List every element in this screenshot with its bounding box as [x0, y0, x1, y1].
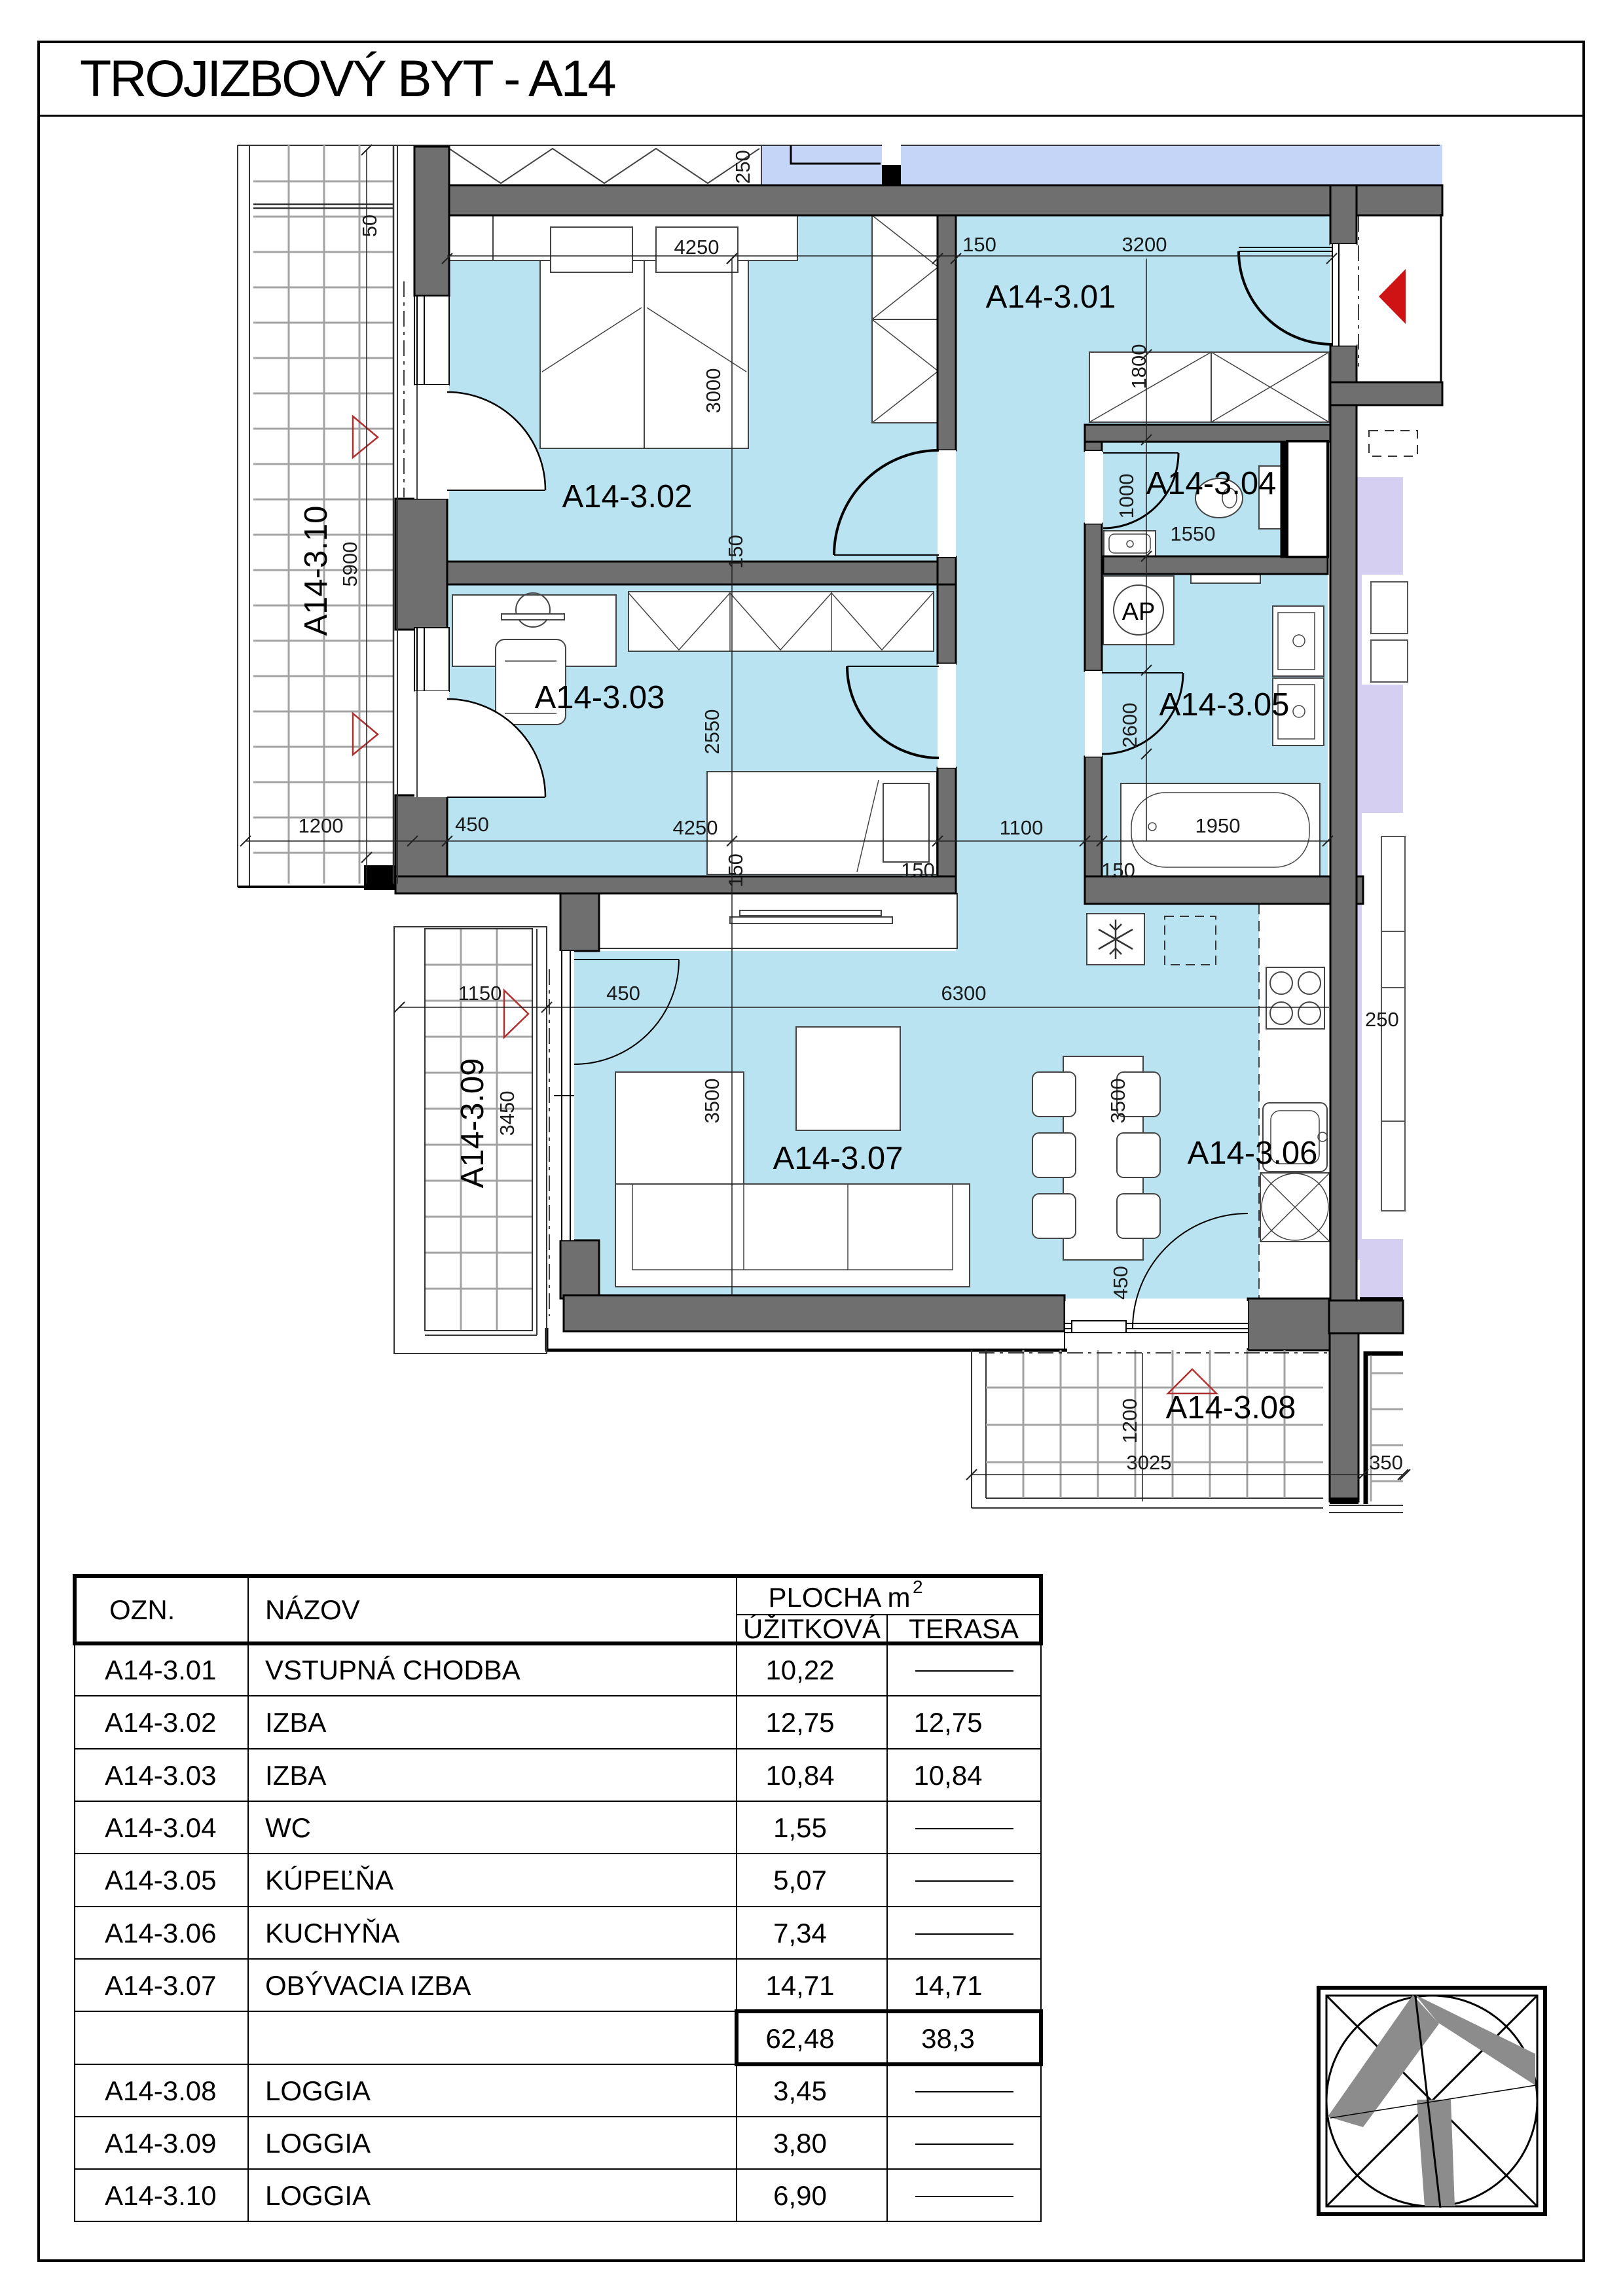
svg-text:PLOCHA m: PLOCHA m — [768, 1582, 910, 1613]
svg-text:3200: 3200 — [1122, 233, 1167, 256]
svg-text:38,3: 38,3 — [921, 2023, 975, 2054]
svg-text:WC: WC — [265, 1812, 311, 1843]
svg-text:1000: 1000 — [1115, 474, 1138, 519]
svg-text:A14-3.01: A14-3.01 — [105, 1655, 216, 1685]
svg-text:1200: 1200 — [1118, 1399, 1141, 1444]
svg-text:3025: 3025 — [1127, 1451, 1172, 1474]
svg-text:150: 150 — [962, 233, 996, 256]
svg-text:3,45: 3,45 — [773, 2075, 827, 2106]
svg-text:12,75: 12,75 — [765, 1707, 834, 1738]
svg-text:OZN.: OZN. — [109, 1594, 175, 1625]
svg-text:A14-3.03: A14-3.03 — [535, 680, 665, 715]
svg-text:A14-3.02: A14-3.02 — [562, 479, 693, 514]
svg-text:3450: 3450 — [496, 1091, 519, 1136]
svg-text:A14-3.08: A14-3.08 — [1166, 1390, 1296, 1426]
svg-text:1,55: 1,55 — [773, 1812, 827, 1843]
svg-text:150: 150 — [724, 535, 747, 569]
svg-text:TROJIZBOVÝ BYT - A14: TROJIZBOVÝ BYT - A14 — [80, 49, 615, 107]
svg-text:450: 450 — [1109, 1266, 1132, 1300]
svg-text:A14-3.01: A14-3.01 — [986, 279, 1116, 315]
svg-text:50: 50 — [358, 215, 381, 237]
svg-text:350: 350 — [1369, 1451, 1403, 1474]
svg-text:2: 2 — [913, 1577, 923, 1597]
svg-text:KUCHYŇA: KUCHYŇA — [265, 1918, 399, 1948]
svg-text:A14-3.08: A14-3.08 — [105, 2075, 216, 2106]
svg-text:KÚPEĽŇA: KÚPEĽŇA — [265, 1865, 393, 1895]
svg-text:4250: 4250 — [674, 236, 720, 259]
svg-text:14,71: 14,71 — [765, 1970, 834, 2001]
svg-text:A14-3.06: A14-3.06 — [1188, 1136, 1318, 1171]
svg-text:A14-3.07: A14-3.07 — [105, 1970, 216, 2001]
svg-text:A14-3.02: A14-3.02 — [105, 1707, 216, 1738]
svg-text:2600: 2600 — [1118, 703, 1141, 748]
svg-text:250: 250 — [731, 150, 754, 184]
svg-text:450: 450 — [455, 813, 489, 836]
svg-text:450: 450 — [606, 982, 640, 1005]
svg-text:NÁZOV: NÁZOV — [265, 1594, 360, 1625]
svg-text:3500: 3500 — [1106, 1079, 1129, 1124]
svg-text:3500: 3500 — [701, 1079, 723, 1124]
svg-text:12,75: 12,75 — [913, 1707, 982, 1738]
svg-text:1150: 1150 — [458, 982, 502, 1005]
svg-text:150: 150 — [1101, 859, 1135, 882]
svg-text:A14-3.07: A14-3.07 — [773, 1141, 903, 1176]
svg-text:TERASA: TERASA — [909, 1613, 1019, 1644]
svg-text:A14-3.04: A14-3.04 — [1146, 466, 1277, 501]
svg-text:IZBA: IZBA — [265, 1760, 326, 1791]
svg-text:1800: 1800 — [1127, 344, 1150, 389]
svg-text:A14-3.05: A14-3.05 — [1159, 687, 1290, 723]
svg-text:LOGGIA: LOGGIA — [265, 2180, 371, 2211]
svg-text:LOGGIA: LOGGIA — [265, 2128, 371, 2159]
svg-text:ÚŽITKOVÁ: ÚŽITKOVÁ — [743, 1613, 881, 1644]
svg-text:A14-3.10: A14-3.10 — [299, 506, 334, 636]
svg-text:10,22: 10,22 — [765, 1655, 834, 1685]
svg-text:150: 150 — [901, 859, 935, 882]
svg-text:5,07: 5,07 — [773, 1865, 827, 1895]
svg-text:7,34: 7,34 — [773, 1918, 827, 1948]
svg-text:62,48: 62,48 — [765, 2023, 834, 2054]
svg-text:250: 250 — [1365, 1008, 1399, 1031]
svg-text:2550: 2550 — [701, 709, 723, 755]
svg-text:1100: 1100 — [1000, 816, 1044, 839]
svg-text:LOGGIA: LOGGIA — [265, 2075, 371, 2106]
svg-text:6,90: 6,90 — [773, 2180, 827, 2211]
svg-text:3,80: 3,80 — [773, 2128, 827, 2159]
svg-text:AP: AP — [1122, 598, 1156, 626]
svg-text:OBÝVACIA IZBA: OBÝVACIA IZBA — [265, 1970, 471, 2001]
svg-text:150: 150 — [724, 853, 747, 888]
svg-text:A14-3.10: A14-3.10 — [105, 2180, 216, 2211]
svg-text:1200: 1200 — [299, 814, 344, 837]
svg-text:IZBA: IZBA — [265, 1707, 326, 1738]
svg-text:1950: 1950 — [1195, 814, 1241, 837]
svg-text:A14-3.06: A14-3.06 — [105, 1918, 216, 1948]
svg-text:A14-3.03: A14-3.03 — [105, 1760, 216, 1791]
svg-text:A14-3.04: A14-3.04 — [105, 1812, 216, 1843]
svg-text:10,84: 10,84 — [765, 1760, 834, 1791]
svg-text:14,71: 14,71 — [913, 1970, 982, 2001]
svg-text:4250: 4250 — [673, 816, 718, 839]
svg-text:10,84: 10,84 — [913, 1760, 982, 1791]
svg-text:A14-3.09: A14-3.09 — [455, 1058, 490, 1189]
svg-text:A14-3.09: A14-3.09 — [105, 2128, 216, 2159]
svg-text:A14-3.05: A14-3.05 — [105, 1865, 216, 1895]
svg-text:6300: 6300 — [941, 982, 987, 1005]
svg-text:5900: 5900 — [338, 542, 361, 587]
svg-text:1550: 1550 — [1171, 522, 1216, 545]
svg-text:VSTUPNÁ CHODBA: VSTUPNÁ CHODBA — [265, 1655, 520, 1685]
svg-text:3000: 3000 — [702, 368, 725, 414]
